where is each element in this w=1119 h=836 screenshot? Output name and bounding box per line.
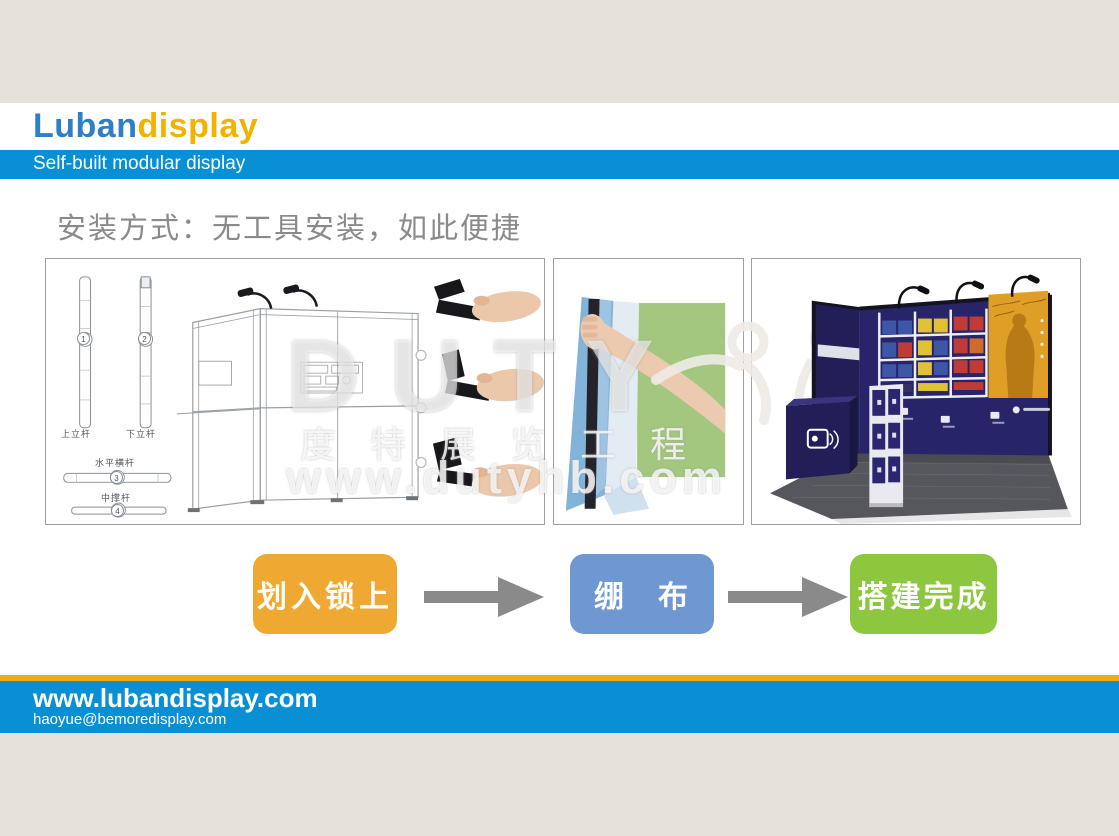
locker-tower (869, 384, 903, 507)
booth-render-image (752, 259, 1080, 524)
part-number-3: 3 (110, 471, 123, 484)
reception-counter (786, 396, 857, 479)
fabric-photo-image (554, 259, 743, 524)
connector-detail-cluster (301, 362, 363, 393)
company-logo: Lubandisplay (33, 107, 258, 146)
step-stretch-fabric-button: 绷 布 (570, 554, 714, 634)
pole-bottom-label: 下立杆 (126, 427, 156, 440)
arrow-right-icon (728, 575, 848, 619)
part-number-1: 1 (77, 332, 90, 345)
lock-photo-3 (433, 438, 544, 501)
pole-top-drawing (78, 277, 92, 428)
spotlight-icons (237, 284, 317, 309)
orange-graphic-panel (988, 291, 1048, 398)
logo-text-secondary: display (137, 107, 258, 145)
part-number-2: 2 (138, 332, 151, 345)
header-tagline: Self-built modular display (33, 153, 245, 175)
panel-fabric-stretch (553, 258, 744, 525)
middle-bar-label: 中撑杆 (101, 491, 131, 504)
pole-bottom-drawing (139, 277, 153, 428)
frame-feet (188, 496, 418, 512)
booth-frame-drawing (177, 309, 426, 509)
pole-top-label: 上立杆 (61, 427, 91, 440)
panel-parts-and-lock (45, 258, 545, 525)
slide-page: Lubandisplay Self-built modular display … (0, 0, 1119, 836)
footer-email: haoyue@bemoredisplay.com (33, 711, 226, 728)
assembly-diagram-image (46, 259, 544, 524)
part-number-4: 4 (111, 504, 124, 517)
lock-photo-2 (442, 349, 544, 404)
footer-bar: www.lubandisplay.com haoyue@bemoredispla… (0, 681, 1119, 733)
logo-text-primary: Luban (33, 107, 137, 145)
step-complete-button: 搭建完成 (850, 554, 997, 634)
lock-photo-1 (434, 279, 543, 326)
footer-website: www.lubandisplay.com (33, 683, 318, 714)
header-tagline-bar: Self-built modular display (0, 150, 1119, 179)
page-title: 安装方式：无工具安装，如此便捷 (57, 205, 522, 247)
panel-finished-booth (751, 258, 1081, 525)
horizontal-bar-label: 水平横杆 (95, 456, 135, 469)
step-lock-in-button: 划入锁上 (253, 554, 397, 634)
arrow-right-icon (424, 575, 544, 619)
